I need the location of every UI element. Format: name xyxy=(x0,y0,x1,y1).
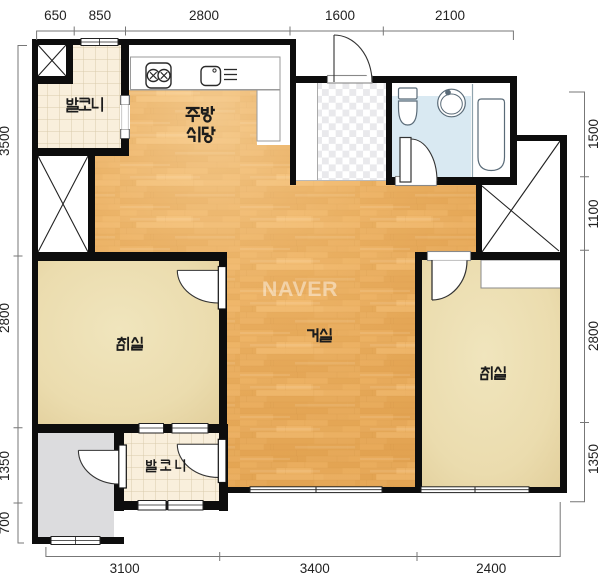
svg-text:1100: 1100 xyxy=(586,199,601,228)
svg-text:1600: 1600 xyxy=(325,8,355,23)
svg-text:3100: 3100 xyxy=(110,561,140,576)
svg-text:2400: 2400 xyxy=(476,561,506,576)
svg-text:1350: 1350 xyxy=(586,444,601,474)
svg-text:2800: 2800 xyxy=(189,8,219,23)
svg-text:1500: 1500 xyxy=(586,119,601,149)
svg-text:NAVER: NAVER xyxy=(262,277,338,301)
svg-text:2100: 2100 xyxy=(435,8,465,23)
svg-text:850: 850 xyxy=(89,8,112,23)
svg-text:700: 700 xyxy=(0,512,12,535)
svg-text:650: 650 xyxy=(44,8,67,23)
svg-text:2800: 2800 xyxy=(0,303,12,333)
svg-text:3500: 3500 xyxy=(0,126,12,156)
svg-text:3400: 3400 xyxy=(300,561,330,576)
svg-text:1350: 1350 xyxy=(0,451,12,481)
svg-text:2800: 2800 xyxy=(586,321,601,351)
